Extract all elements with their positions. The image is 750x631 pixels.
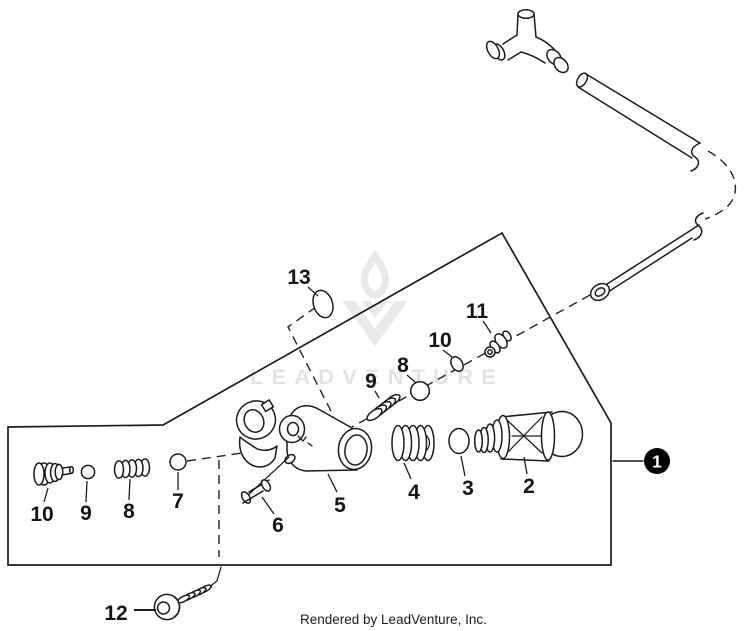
part-2-check-valve: [475, 412, 583, 462]
part-10-fitting-left: [34, 463, 73, 485]
part-11-label: 11: [466, 300, 489, 323]
fuel-line-upper: [574, 71, 700, 171]
part-9-label-right: 9: [365, 370, 377, 393]
part-10-label-left: 10: [30, 503, 53, 526]
part-5-label: 5: [334, 494, 346, 517]
exploded-view-drawing: LEADVENTURE: [0, 0, 750, 631]
part-9-label-left: 9: [80, 502, 92, 525]
part-6-label: 6: [272, 514, 284, 537]
part-12-screw: [154, 567, 221, 620]
part-8-label-right: 8: [397, 354, 409, 377]
tube-continuation-dashed: [705, 151, 735, 219]
part-13-label: 13: [287, 266, 310, 289]
part-8-ball-right: [411, 382, 430, 401]
part-6-pin: [240, 478, 273, 504]
footer-credit: Rendered by LeadVenture, Inc.: [300, 612, 487, 627]
parts-diagram-canvas: LEADVENTURE: [0, 0, 750, 631]
part-3-label: 3: [462, 477, 474, 500]
callout-1-label: 1: [652, 452, 662, 472]
part-11-fitting: [485, 330, 513, 357]
part-7-label: 7: [172, 490, 184, 513]
part13-dashed-leader: [288, 307, 334, 417]
callout-1-badge: 1: [613, 448, 670, 474]
part-12-label: 12: [104, 602, 127, 625]
part-4-label: 4: [408, 481, 420, 504]
part-9-spring-right: [365, 392, 402, 422]
part7-dashed-leader: [187, 452, 249, 461]
fuel-line-lower: [587, 213, 703, 304]
part-4-spring: [392, 426, 434, 461]
watermark-logo: [342, 250, 408, 346]
part-7-ball: [170, 454, 186, 470]
part-8-spring-left: [115, 459, 150, 478]
part-5-body: [231, 395, 374, 471]
part-10-label-right: 10: [428, 329, 451, 352]
part-3-o-ring: [449, 429, 469, 454]
part-2-label: 2: [523, 475, 535, 498]
watermark-text: LEADVENTURE: [250, 365, 504, 389]
tee-fitting: [484, 10, 571, 76]
part-8-label-left: 8: [123, 500, 135, 523]
part-9-o-ring-left: [81, 465, 94, 478]
